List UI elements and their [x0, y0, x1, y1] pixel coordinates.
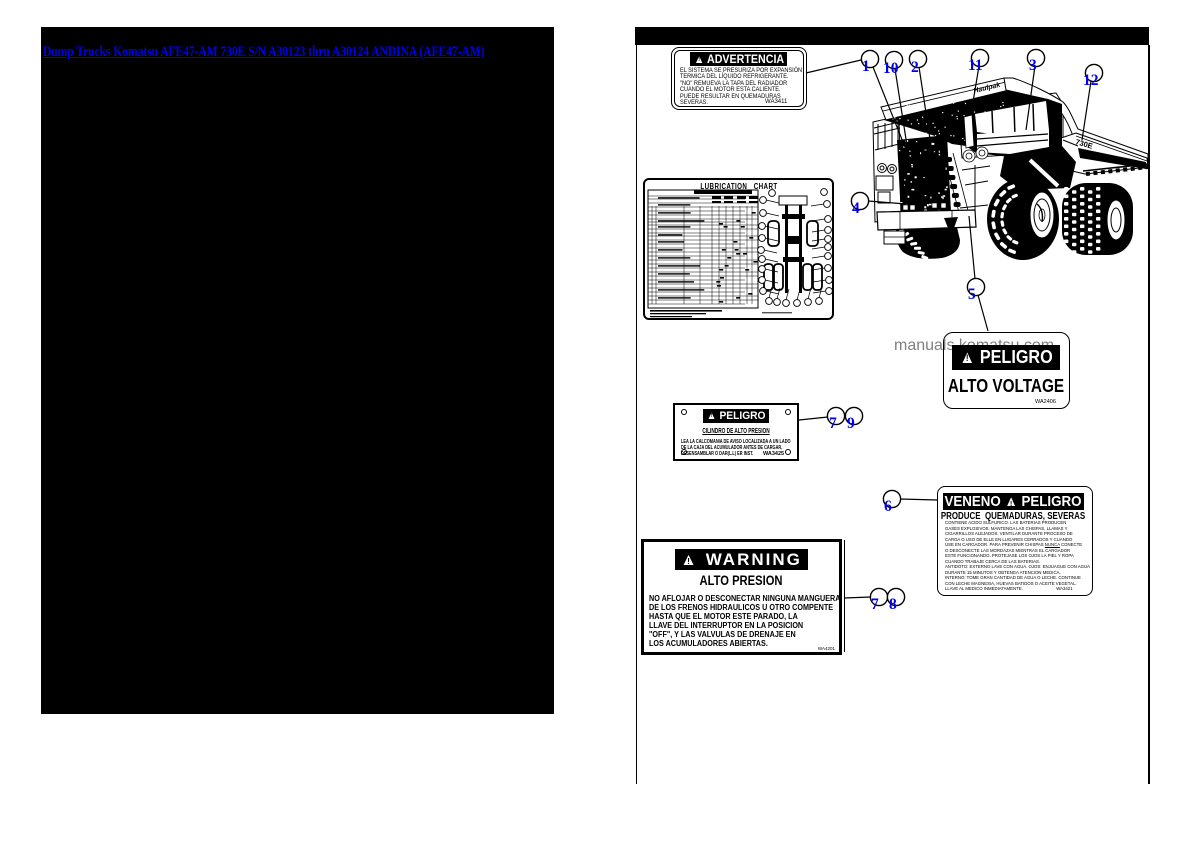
svg-text:6: 6 [884, 498, 892, 515]
svg-text:12: 12 [1083, 72, 1099, 89]
svg-text:11: 11 [968, 57, 983, 74]
svg-text:9: 9 [847, 415, 855, 432]
svg-text:8: 8 [889, 596, 897, 613]
svg-text:5: 5 [968, 286, 976, 303]
svg-text:7: 7 [829, 415, 837, 432]
svg-text:10: 10 [883, 60, 899, 77]
svg-text:7: 7 [871, 596, 879, 613]
svg-text:2: 2 [911, 59, 919, 76]
svg-text:3: 3 [1029, 57, 1037, 74]
svg-text:1: 1 [862, 58, 870, 75]
svg-text:4: 4 [852, 200, 860, 217]
